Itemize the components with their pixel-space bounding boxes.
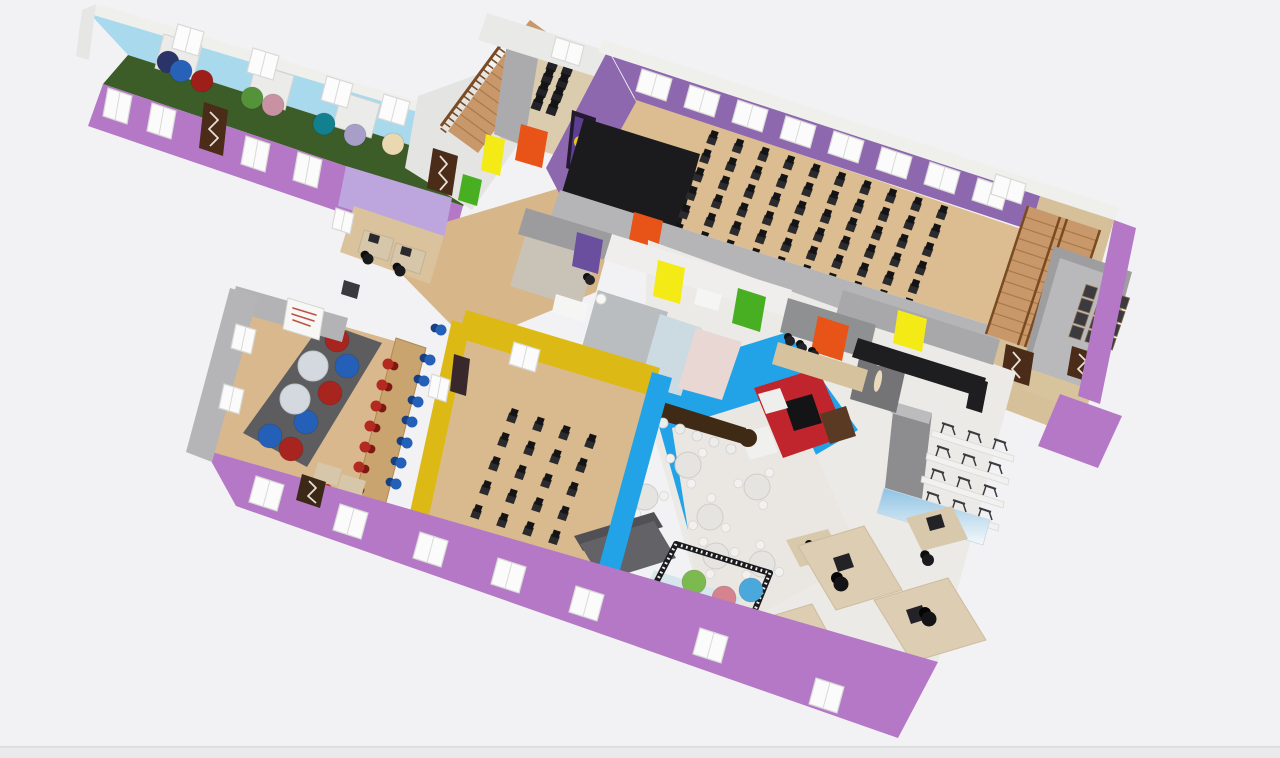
lounge-blue-chairs-1 — [419, 376, 430, 387]
bar-stools-1 — [675, 424, 685, 434]
small-room-chair-0 — [585, 275, 595, 285]
waiting-chairs-0 — [785, 336, 795, 346]
dining-tables-0-chair-1 — [666, 454, 675, 463]
lounge-beanbags-2 — [318, 381, 342, 405]
lounge-round-tables-1 — [280, 384, 310, 414]
bar-stools-3 — [709, 437, 719, 447]
lounge-round-tables-0 — [298, 351, 328, 381]
lounge-red-chairs-3 — [365, 421, 376, 432]
lounge-red-chairs-5 — [354, 462, 365, 473]
dining-tables-4-chair-1 — [730, 548, 739, 557]
wing-poufs-6 — [344, 124, 366, 146]
stairwell-poufs-2 — [739, 578, 763, 602]
lounge-blue-chairs-3 — [407, 417, 418, 428]
wing-poufs-3 — [241, 87, 263, 109]
dining-tables-0-chair-0 — [687, 479, 696, 488]
dining-tables-2-chair-2 — [721, 523, 730, 532]
dining-tables-4-chair-2 — [706, 570, 715, 579]
lounge-blue-chairs-0 — [425, 355, 436, 366]
dining-tables-1-chair-2 — [659, 492, 668, 501]
lounge-beanbags-4 — [258, 424, 282, 448]
bar-counter-end — [739, 429, 757, 447]
lounge-beanbags-1 — [335, 354, 359, 378]
lounge-blue-chairs-5 — [396, 458, 407, 469]
wing-poufs-2 — [191, 70, 213, 92]
bar-stools-2 — [692, 431, 702, 441]
bar-stools-4 — [726, 444, 736, 454]
lounge-red-chairs-0 — [383, 359, 394, 370]
dining-tables-2 — [697, 504, 723, 530]
door-orange-corridor — [515, 124, 548, 168]
dining-tables-2-chair-1 — [707, 494, 716, 503]
lounge-red-chairs-1 — [377, 380, 388, 391]
office1-chairs-0 — [363, 254, 374, 265]
dining-tables-2-chair-0 — [688, 521, 697, 530]
floorplan-canvas[interactable]: 3D dollhouse floor plan view — [0, 0, 1280, 758]
bath-toilet — [596, 294, 606, 304]
floorplan-3d-view[interactable]: 3D dollhouse floor plan view — [0, 0, 1280, 758]
lounge-blue-chairs-2 — [413, 397, 424, 408]
lounge-red-chairs-4 — [360, 442, 371, 453]
dining-tables-0-chair-2 — [698, 448, 707, 457]
dining-tables-0 — [675, 452, 701, 478]
wing-poufs-7 — [382, 133, 404, 155]
lounge-beanbags-5 — [279, 437, 303, 461]
wing-poufs-5 — [313, 113, 335, 135]
bottom-band — [0, 748, 1280, 758]
wing-poufs-4 — [262, 94, 284, 116]
dining-tables-5-chair-1 — [775, 568, 784, 577]
dining-tables-5-chair-0 — [756, 541, 765, 550]
office1-chairs-1 — [395, 266, 406, 277]
reception-chair-0 — [922, 554, 934, 566]
lounge-red-chairs-2 — [371, 401, 382, 412]
dining-tables-3-chair-1 — [765, 468, 774, 477]
scene-layers — [0, 0, 1280, 758]
lounge-blue-chairs-4 — [402, 438, 413, 449]
lounge-blue-chairs-7 — [436, 325, 447, 336]
lounge-blue-chairs-6 — [391, 479, 402, 490]
door-yellow-bath — [653, 260, 685, 304]
dining-tables-3-chair-2 — [759, 500, 768, 509]
wing-poufs-1 — [170, 60, 192, 82]
wing-door — [199, 102, 228, 156]
dining-tables-3 — [744, 474, 770, 500]
office-chairs-1 — [922, 612, 937, 627]
dining-tables-3-chair-0 — [734, 479, 743, 488]
office-chairs-0 — [834, 577, 849, 592]
dining-tables-4-chair-0 — [699, 537, 708, 546]
